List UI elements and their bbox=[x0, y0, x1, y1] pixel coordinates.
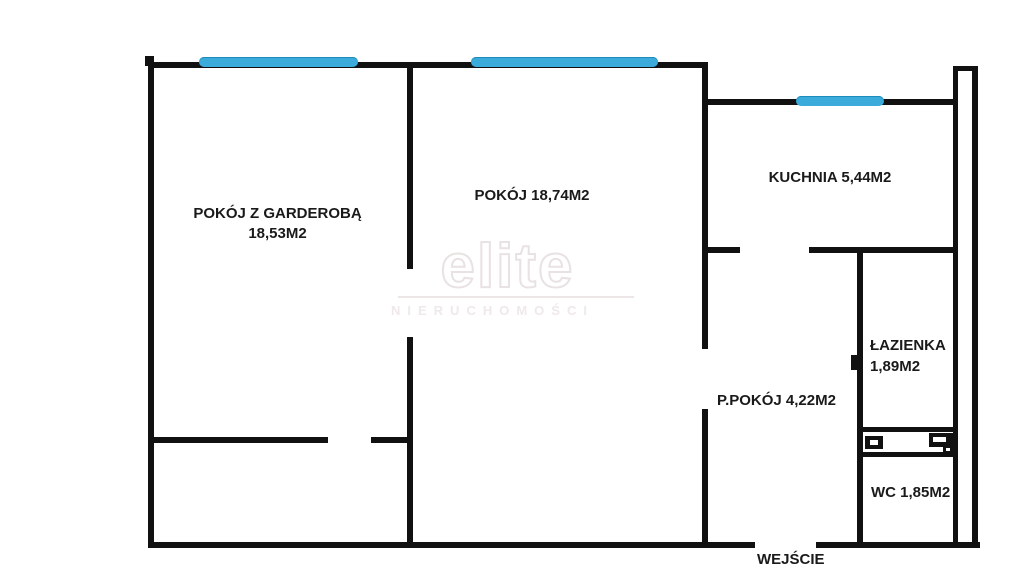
watermark-subtitle-text: NIERUCHOMOŚCI bbox=[391, 303, 594, 318]
window-room2 bbox=[471, 57, 658, 67]
entrance-label: WEJŚCIE bbox=[757, 551, 825, 568]
room2-label: POKÓJ 18,74M2 bbox=[432, 187, 632, 204]
bathroom-area-label: 1,89M2 bbox=[870, 358, 920, 375]
watermark-underline bbox=[398, 296, 634, 298]
wall-wardrobe-left-segment bbox=[148, 437, 328, 443]
wall-shaft-left bbox=[953, 66, 958, 548]
wall-kitchen-bottom-right bbox=[809, 247, 958, 253]
wall-bottom-left-segment bbox=[148, 542, 755, 548]
wc-label: WC 1,85M2 bbox=[871, 484, 950, 501]
watermark-logo: elite bbox=[400, 236, 615, 298]
hall-label: P.POKÓJ 4,22M2 bbox=[717, 392, 836, 409]
watermark-brand-text: elite bbox=[400, 236, 615, 298]
wall-wardrobe-right-segment bbox=[371, 437, 413, 443]
wall-bathroom-left bbox=[857, 247, 863, 548]
window-room1 bbox=[199, 57, 358, 67]
wall-shaft-right bbox=[972, 66, 978, 548]
wall-hall-divider-lower bbox=[702, 409, 708, 548]
wall-kitchen-bottom-left bbox=[702, 247, 740, 253]
room1-area-label: 18,53M2 bbox=[170, 225, 385, 242]
sink-icon bbox=[865, 436, 883, 449]
wall-bathroom-wc-divider bbox=[857, 427, 958, 432]
wall-hall-divider-upper bbox=[702, 62, 708, 349]
wall-left bbox=[148, 62, 154, 548]
bathroom-label: ŁAZIENKA bbox=[870, 337, 946, 354]
window-kitchen bbox=[796, 96, 884, 106]
floor-plan: elite NIERUCHOMOŚCI POKÓJ Z GARDEROBĄ 18… bbox=[0, 0, 1024, 576]
bathroom-door-mark bbox=[851, 355, 857, 370]
room1-label: POKÓJ Z GARDEROBĄ bbox=[170, 205, 385, 222]
washer-detail-icon bbox=[943, 445, 953, 454]
kitchen-label: KUCHNIA 5,44M2 bbox=[730, 169, 930, 186]
wall-room-divider-upper bbox=[407, 62, 413, 269]
